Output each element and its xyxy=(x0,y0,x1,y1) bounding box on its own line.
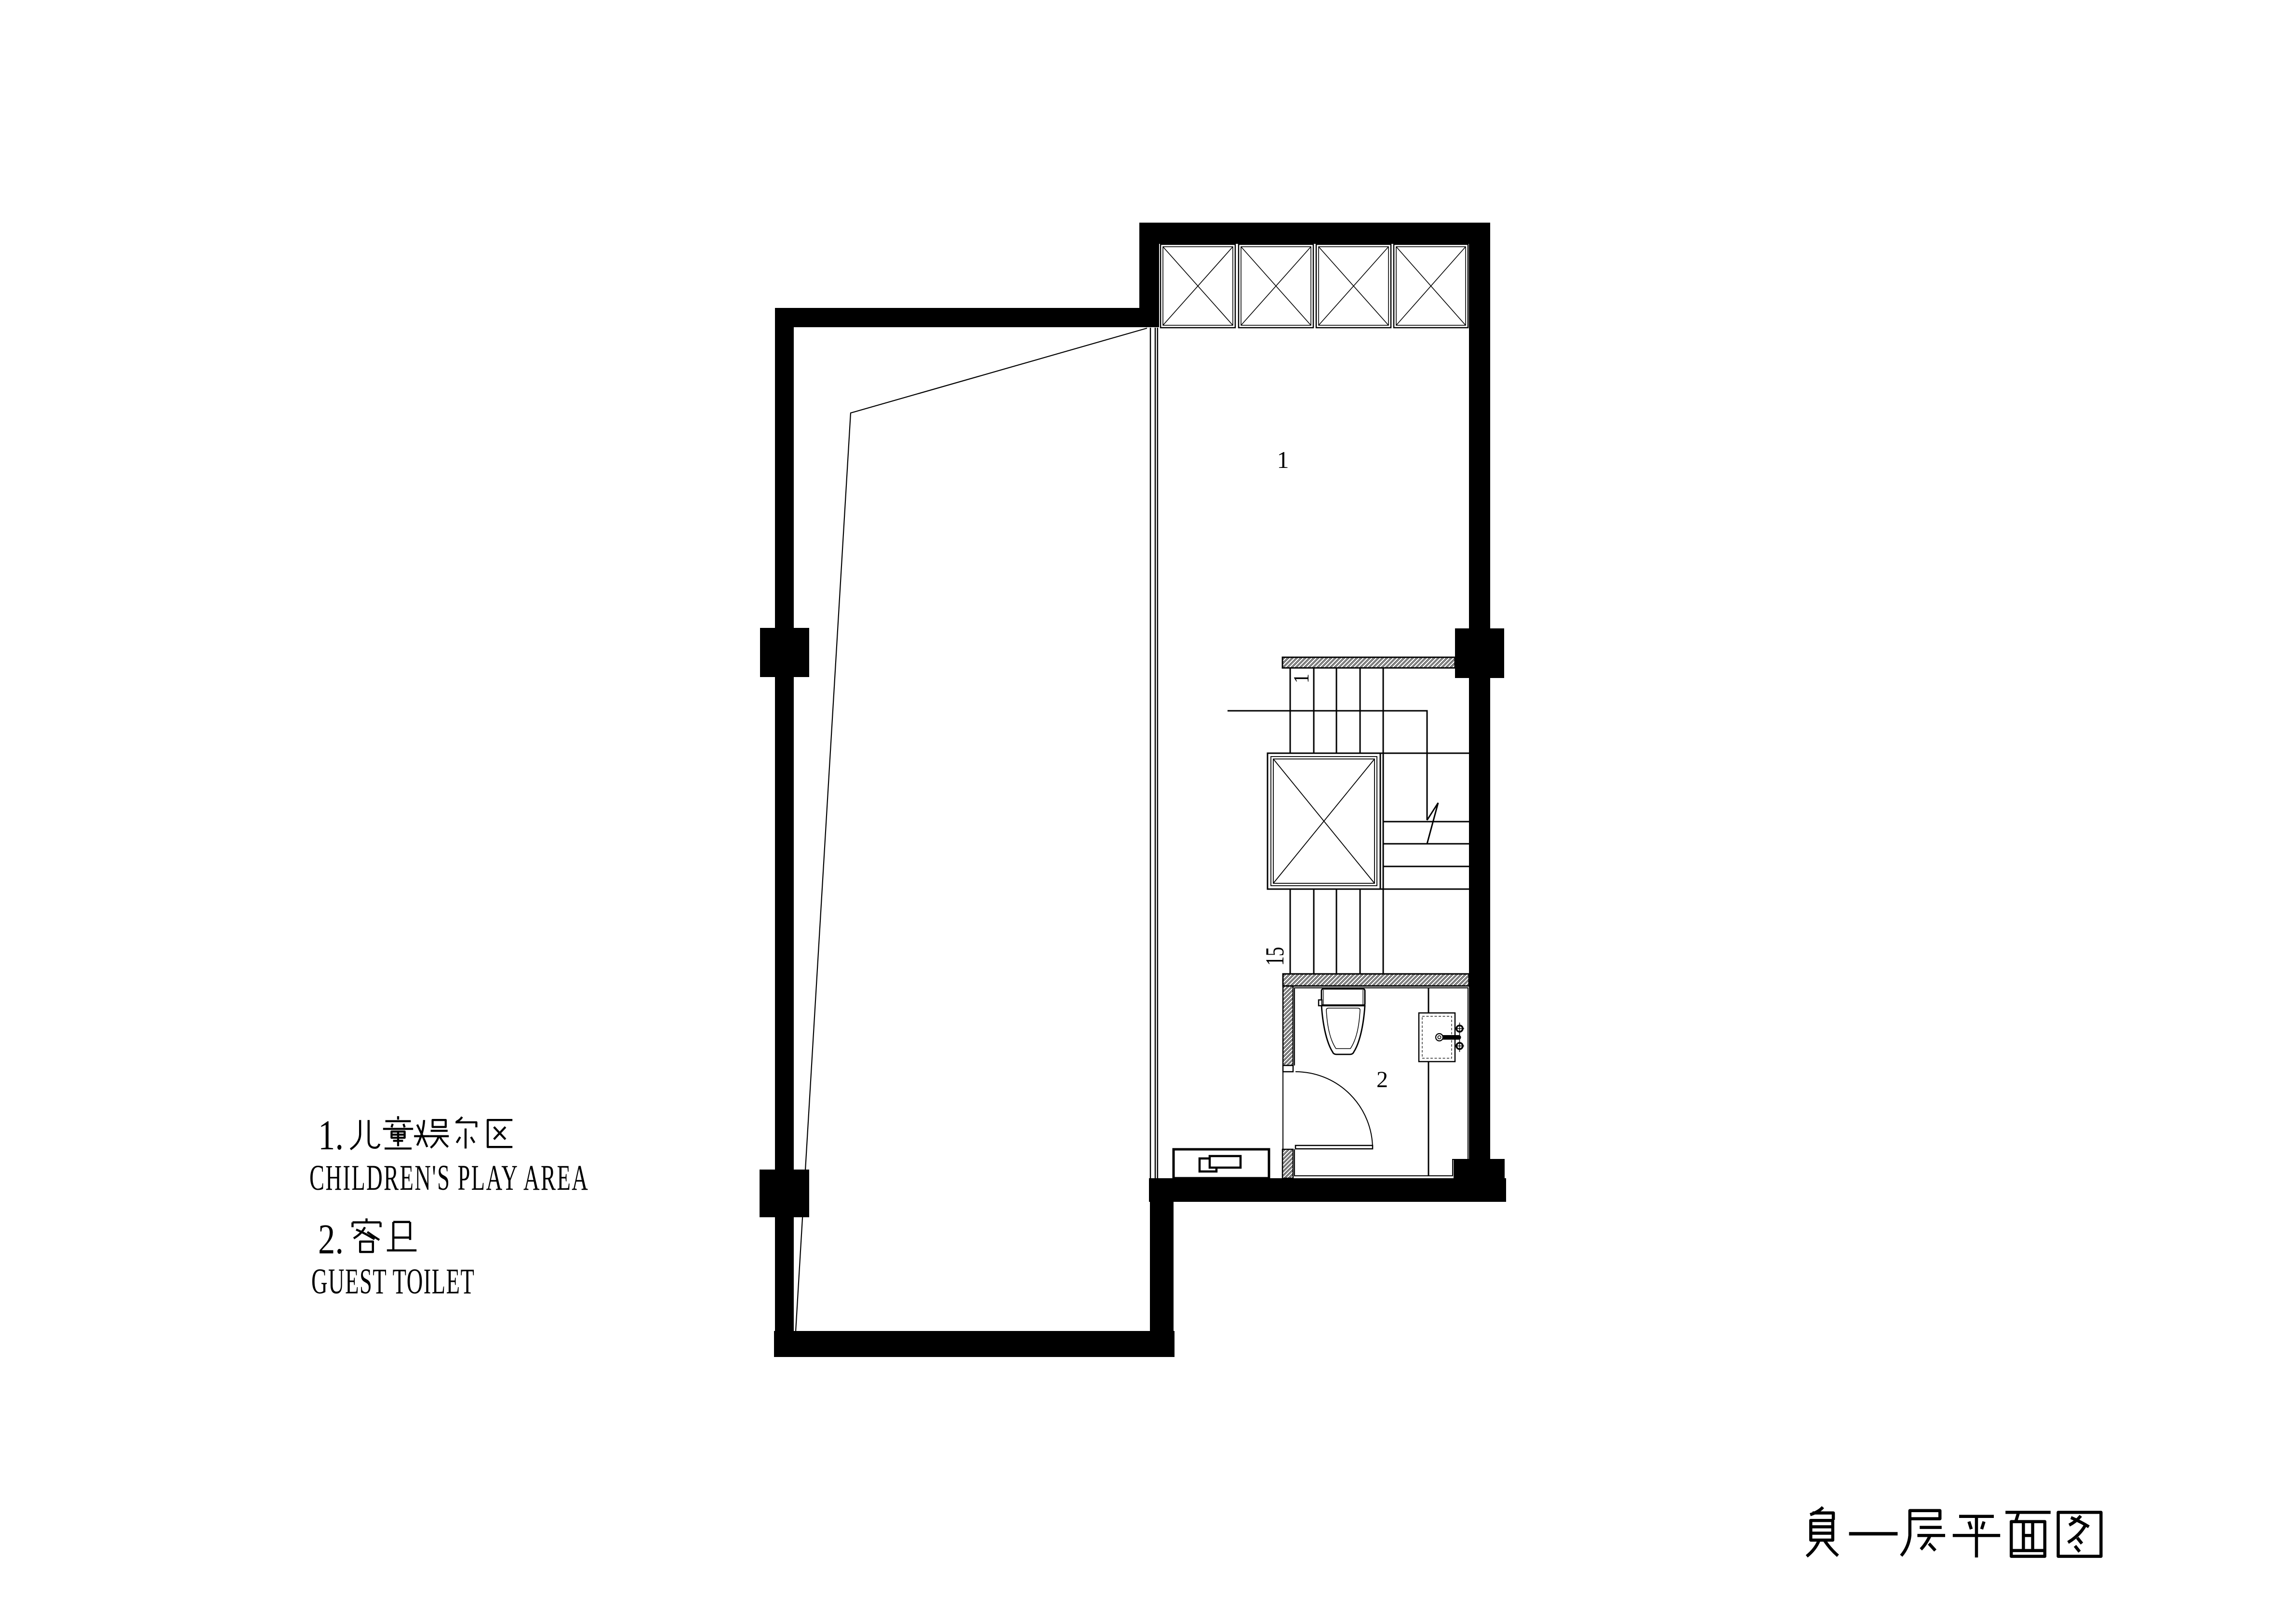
svg-text:1: 1 xyxy=(1277,446,1289,473)
svg-text:2.: 2. xyxy=(318,1216,344,1263)
svg-text:2: 2 xyxy=(1376,1067,1388,1092)
svg-text:CHILDREN'S PLAY AREA: CHILDREN'S PLAY AREA xyxy=(309,1158,588,1198)
svg-text:1: 1 xyxy=(1289,674,1313,683)
svg-text:GUEST TOILET: GUEST TOILET xyxy=(311,1262,474,1302)
svg-text:1.: 1. xyxy=(318,1112,344,1159)
svg-text:15: 15 xyxy=(1260,947,1289,966)
